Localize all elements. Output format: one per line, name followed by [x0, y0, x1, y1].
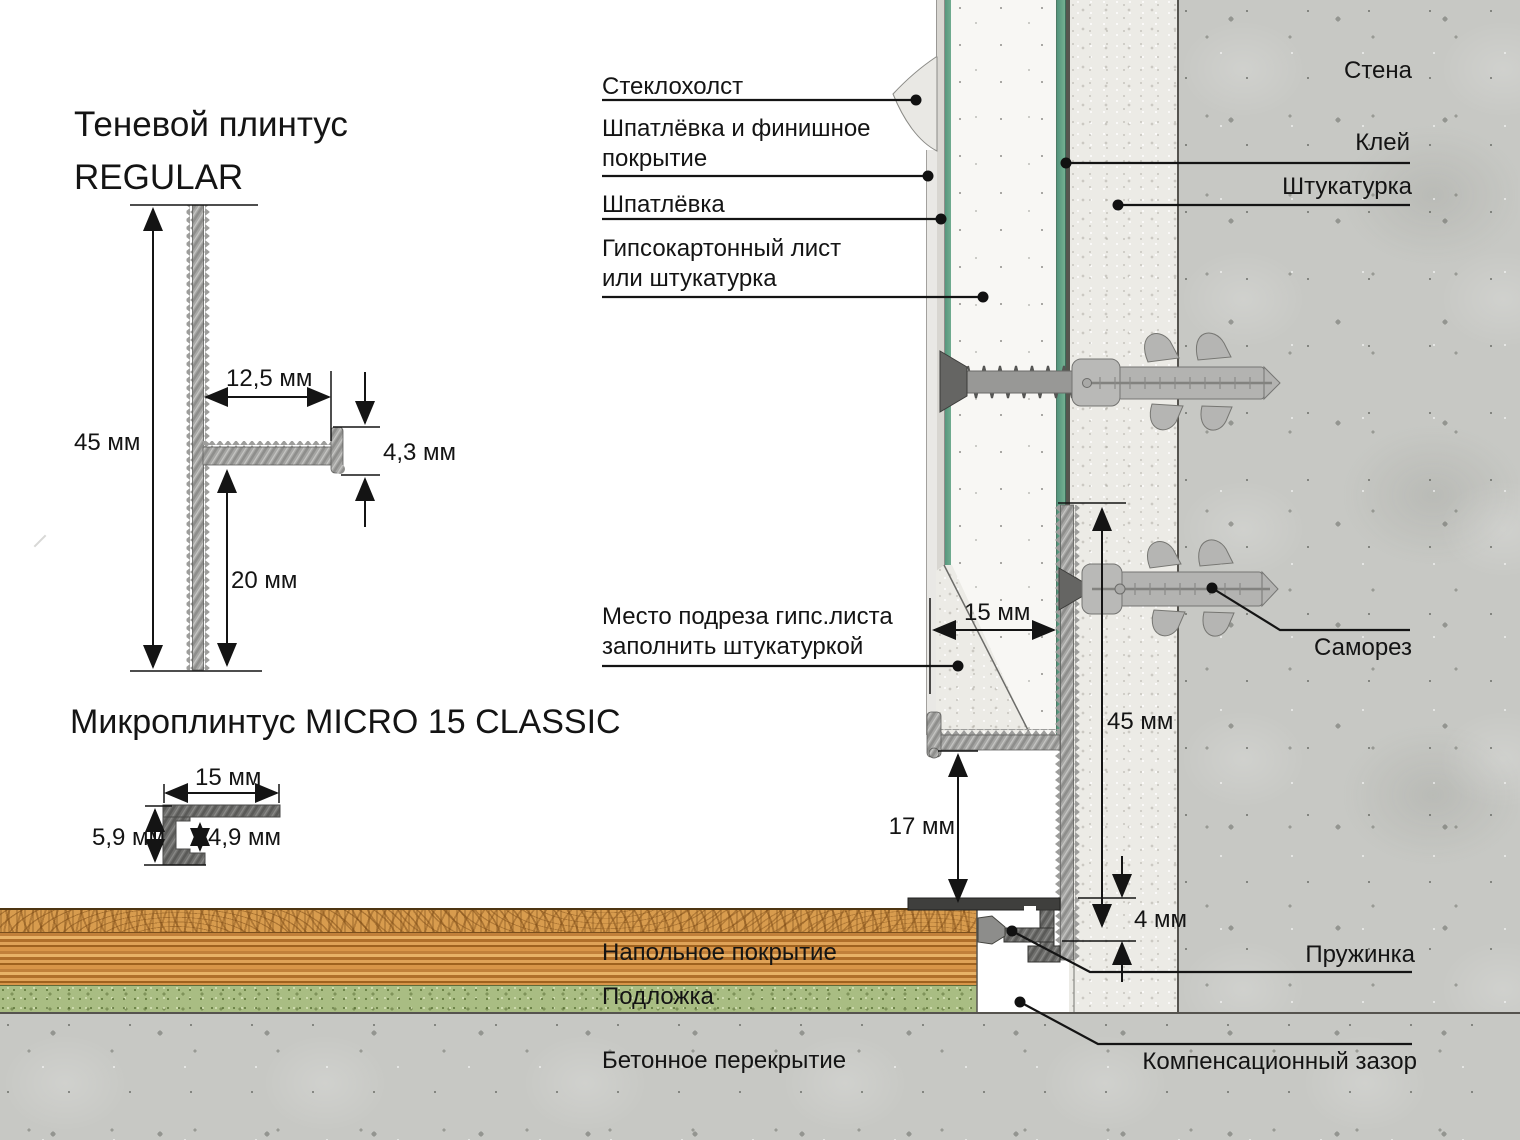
regular-profile-drawing: [130, 205, 380, 671]
dim-micro-width: 15 мм: [195, 763, 261, 793]
label-compensation-gap: Компенсационный зазор: [1142, 1047, 1417, 1077]
dim-regular-flange-width: 12,5 мм: [226, 364, 312, 394]
dim-install-floor-gap: 4 мм: [1134, 905, 1187, 935]
dim-regular-bottom-leg: 20 мм: [231, 566, 297, 596]
dim-install-cut-depth: 15 мм: [964, 598, 1030, 628]
label-screw: Саморез: [1314, 633, 1412, 663]
label-putty: Шпатлёвка: [602, 190, 725, 220]
dim-regular-height: 45 мм: [74, 428, 140, 458]
dim-install-plinth-height: 45 мм: [1107, 707, 1173, 737]
label-putty-finish: Шпатлёвка и финишное покрытие: [602, 114, 871, 174]
label-wall: Стена: [1344, 56, 1412, 86]
label-plaster: Штукатурка: [1282, 172, 1412, 202]
label-cut-note: Место подреза гипс.листа заполнить штука…: [602, 602, 893, 662]
label-gypsum-board: Гипсокартонный лист или штукатурка: [602, 234, 841, 294]
diagram-stage: Теневой плинтус REGULAR Микроплинтус MIC…: [0, 0, 1520, 1140]
installed-micro-plinth: [908, 898, 1060, 962]
label-glue: Клей: [1355, 128, 1410, 158]
label-underlay: Подложка: [602, 982, 714, 1012]
label-floor-covering: Напольное покрытие: [602, 938, 837, 968]
dim-micro-height: 5,9 мм: [92, 823, 165, 853]
label-concrete-slab: Бетонное перекрытие: [602, 1046, 846, 1076]
spring-clip: [978, 916, 1005, 944]
screw-with-dowel-top: [940, 333, 1280, 430]
title-micro-plinth: Микроплинтус MICRO 15 CLASSIC: [70, 702, 621, 742]
title-regular-plinth: Теневой плинтус REGULAR: [74, 98, 348, 204]
dim-regular-lip-height: 4,3 мм: [383, 438, 456, 468]
installed-regular-plinth: [927, 505, 1080, 960]
dim-micro-inner-height: 4,9 мм: [208, 823, 281, 853]
label-glass-fiber: Стеклохолст: [602, 72, 743, 102]
screw-with-dowel-bottom: [1059, 540, 1278, 636]
screw-head-icon: [940, 351, 967, 412]
dim-install-shadow-gap: 17 мм: [880, 812, 955, 842]
label-spring: Пружинка: [1305, 940, 1415, 970]
